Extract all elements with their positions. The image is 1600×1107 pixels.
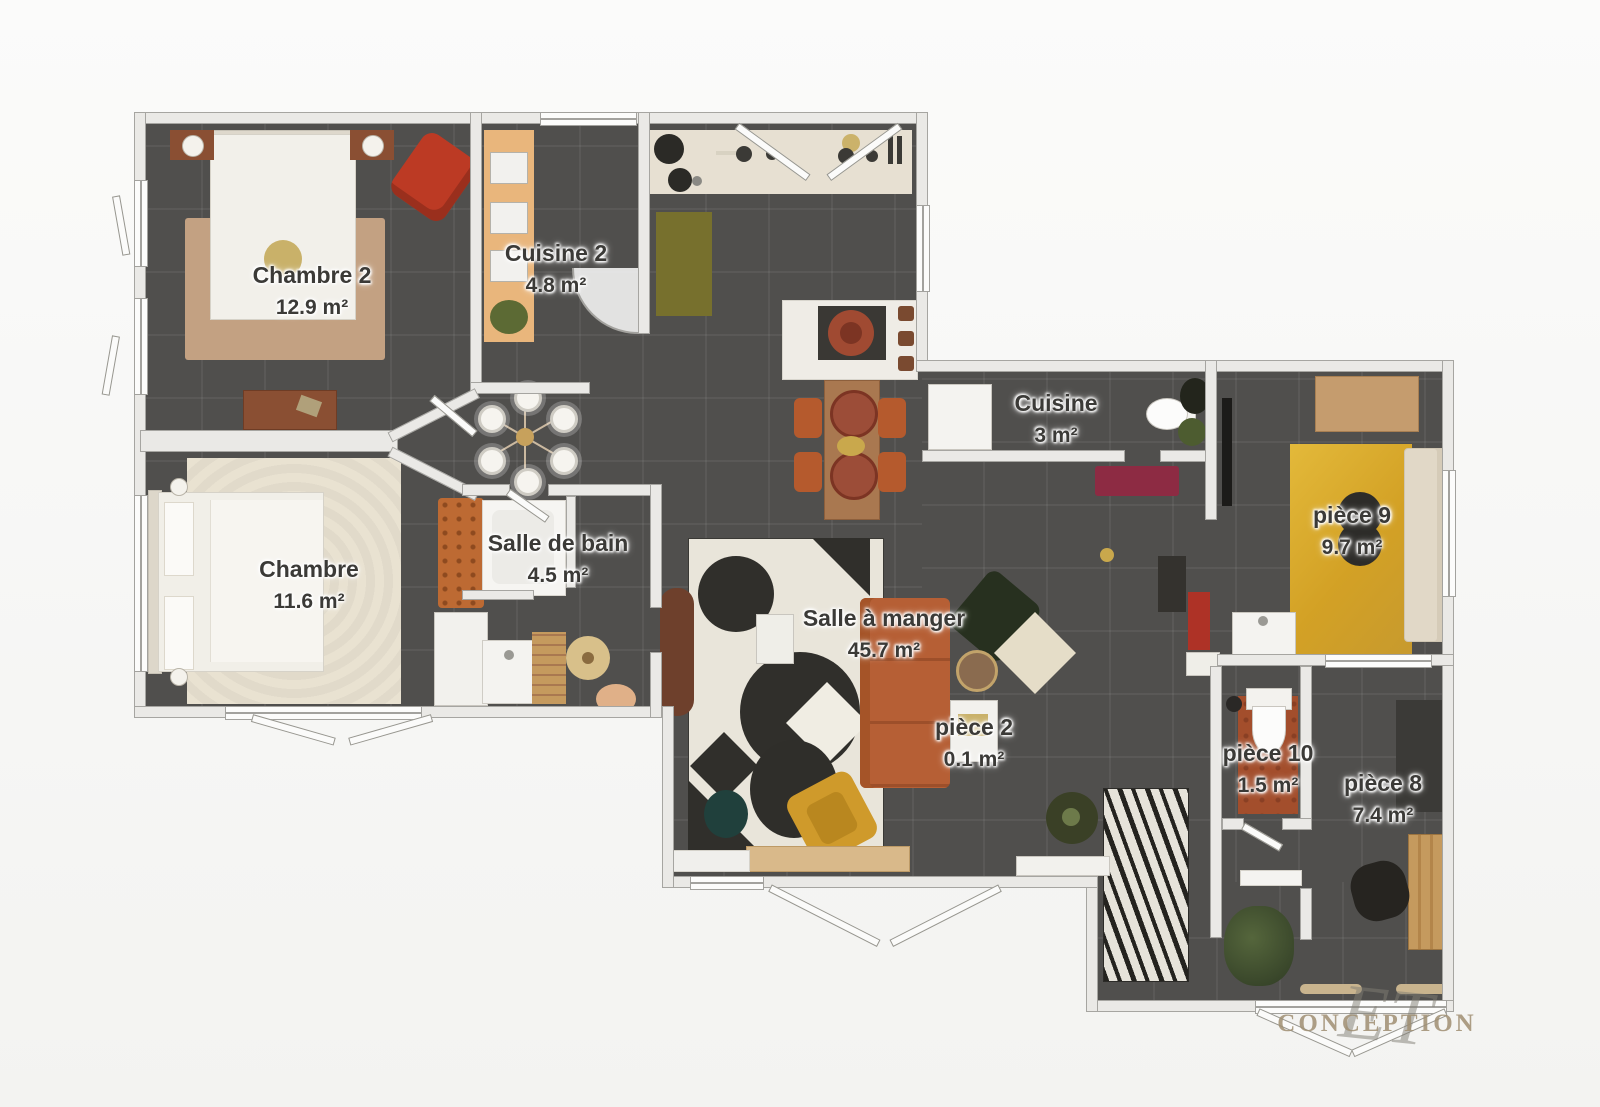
plant-large	[1224, 906, 1294, 986]
chandelier-bulb	[550, 405, 578, 433]
chandelier-bulb	[514, 468, 542, 496]
bed-pillow	[164, 502, 194, 576]
window	[540, 112, 637, 126]
chandelier-bulb	[550, 447, 578, 475]
room-area: 12.9 m²	[253, 296, 372, 320]
wall	[140, 430, 398, 452]
door-leaf	[768, 884, 880, 947]
rug-pattern-triangle	[812, 538, 870, 596]
kitchen2-appliance	[490, 202, 528, 234]
cutlery	[888, 136, 893, 164]
faucet	[504, 650, 514, 660]
wall	[1282, 818, 1312, 830]
wall	[1205, 360, 1217, 520]
bar-stool	[898, 356, 914, 371]
dinner-plate	[830, 390, 878, 438]
sideboard	[660, 588, 694, 716]
wall	[916, 360, 1454, 372]
room-name: pièce 9	[1313, 502, 1391, 529]
watermark-text: CONCEPTION	[1277, 1010, 1476, 1037]
window-leaf	[102, 335, 120, 395]
window	[134, 180, 148, 267]
wall	[134, 112, 928, 124]
window	[134, 298, 148, 395]
room-label-cuisine-2: Cuisine 2 4.8 m²	[505, 240, 607, 298]
wall	[1300, 888, 1312, 940]
room-name: Salle à manger	[803, 605, 965, 632]
white-cabinet	[434, 612, 488, 706]
island-bowl-center	[840, 322, 862, 344]
wall	[922, 450, 1125, 462]
window-leaf	[112, 195, 130, 255]
room-label-piece-2: pièce 2 0.1 m²	[935, 714, 1013, 772]
room-area: 45.7 m²	[803, 639, 965, 663]
dining-chair	[878, 398, 906, 438]
window-sill	[664, 850, 750, 872]
room-label-piece-10: pièce 10 1.5 m²	[1223, 740, 1314, 798]
wood-console-low	[746, 846, 910, 872]
bar-stool	[898, 331, 914, 346]
window	[690, 876, 764, 890]
magazine	[756, 614, 794, 664]
chandelier-bulb	[478, 405, 506, 433]
kitchen-appliance	[928, 384, 992, 450]
coat-rack	[668, 168, 692, 192]
bedside-lamp	[182, 135, 204, 157]
room-name: pièce 8	[1344, 770, 1422, 797]
entry-olive-rug	[656, 212, 712, 316]
coat-rack	[654, 134, 684, 164]
wall	[470, 112, 482, 394]
kitchen2-appliance	[490, 152, 528, 184]
dinner-plate	[830, 452, 878, 500]
potted-plant	[490, 300, 528, 334]
dining-chair	[794, 398, 822, 438]
bench-maroon	[1095, 466, 1179, 496]
bed-pillow	[164, 596, 194, 670]
ladder-shelf-red	[1188, 592, 1210, 650]
bar-stool	[898, 306, 914, 321]
gold-dish	[837, 436, 865, 456]
zebra-rug	[1103, 788, 1189, 982]
wood-console	[1315, 376, 1419, 432]
room-area: 11.6 m²	[259, 590, 359, 614]
wood-bath-mat	[532, 632, 566, 704]
sink-fixture	[736, 146, 752, 162]
room-area: 4.5 m²	[488, 564, 629, 588]
chandelier-bulb	[478, 447, 506, 475]
window	[916, 205, 930, 292]
room-label-cuisine: Cuisine 3 m²	[1014, 390, 1097, 448]
wall	[470, 382, 590, 394]
faucet	[716, 151, 736, 155]
wall	[1442, 360, 1454, 1012]
room-name: Cuisine 2	[505, 240, 607, 267]
room-label-piece-9: pièce 9 9.7 m²	[1313, 502, 1391, 560]
wall	[1086, 876, 1098, 1012]
room-name: Cuisine	[1014, 390, 1097, 417]
wall	[1210, 666, 1222, 938]
tv-wall-mounted	[1222, 398, 1232, 506]
room-label-piece-8: pièce 8 7.4 m²	[1344, 770, 1422, 828]
room-area: 7.4 m²	[1344, 804, 1422, 828]
window	[134, 495, 148, 672]
floorplan-canvas: Chambre 2 12.9 m² Cuisine 2 4.8 m² Cuisi…	[0, 0, 1600, 1107]
wall	[462, 484, 510, 496]
room-name: Chambre 2	[253, 262, 372, 289]
wall	[662, 706, 674, 888]
pendant-light	[1100, 548, 1114, 562]
bedside-lamp	[170, 478, 188, 496]
chandelier-center	[516, 428, 534, 446]
faucet	[1258, 616, 1268, 626]
wall	[650, 484, 662, 608]
dining-chair	[794, 452, 822, 492]
window	[1442, 470, 1456, 597]
coat-hook	[692, 176, 702, 186]
room-area: 4.8 m²	[505, 274, 607, 298]
straw-rug-center	[582, 652, 594, 664]
cutlery	[897, 136, 902, 164]
dresser	[243, 390, 337, 430]
window-sill	[1240, 870, 1302, 886]
bedside-lamp	[170, 668, 188, 686]
room-name: Chambre	[259, 556, 359, 583]
room-name: pièce 2	[935, 714, 1013, 741]
plant-green	[1178, 418, 1206, 446]
room-area: 9.7 m²	[1313, 536, 1391, 560]
wall	[548, 484, 662, 496]
room-area: 3 m²	[1014, 424, 1097, 448]
room-label-salle-a-manger: Salle à manger 45.7 m²	[803, 605, 965, 663]
wall	[638, 112, 650, 334]
pouf-teal	[704, 790, 748, 838]
wall	[462, 590, 534, 600]
console-dark	[1158, 556, 1186, 612]
wall-hook	[1226, 696, 1242, 712]
room-label-chambre: Chambre 11.6 m²	[259, 556, 359, 614]
door-leaf	[889, 884, 1001, 947]
window	[1325, 654, 1432, 668]
room-name: Salle de bain	[488, 530, 629, 557]
console-white	[1016, 856, 1110, 876]
room-name: pièce 10	[1223, 740, 1314, 767]
dining-chair	[878, 452, 906, 492]
room-label-chambre-2: Chambre 2 12.9 m²	[253, 262, 372, 320]
wall	[650, 652, 662, 718]
round-green-rug-center	[1062, 808, 1080, 826]
room-label-salle-de-bain: Salle de bain 4.5 m²	[488, 530, 629, 588]
bedside-lamp	[362, 135, 384, 157]
room-area: 0.1 m²	[935, 748, 1013, 772]
watermark: ET CONCEPTION	[1262, 1010, 1492, 1038]
room-area: 1.5 m²	[1223, 774, 1314, 798]
